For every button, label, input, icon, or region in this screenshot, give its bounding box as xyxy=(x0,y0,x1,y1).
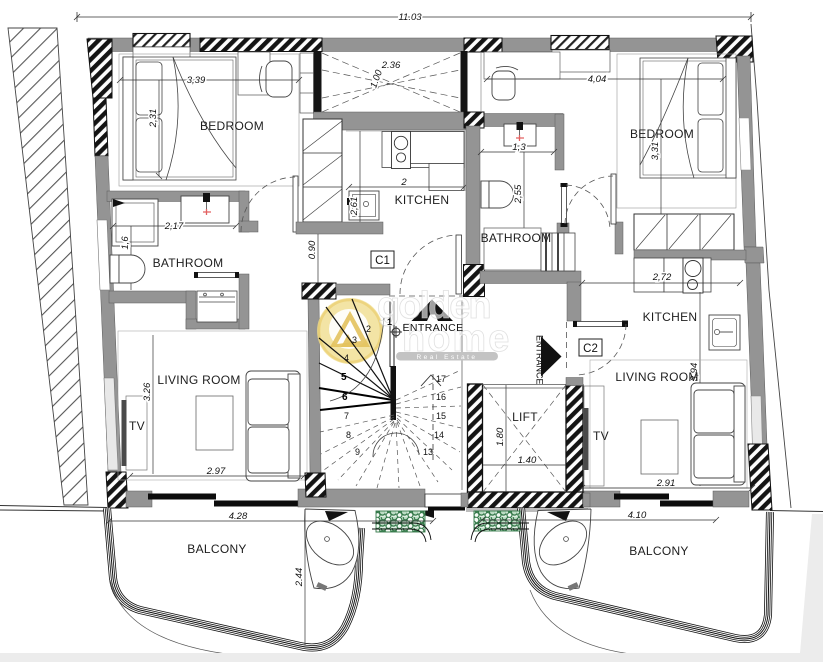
svg-text:1,6: 1,6 xyxy=(120,236,131,250)
svg-text:BALCONY: BALCONY xyxy=(187,542,246,556)
svg-text:2,72: 2,72 xyxy=(652,272,672,283)
svg-text:TV: TV xyxy=(593,429,609,443)
svg-text:4: 4 xyxy=(344,353,349,363)
svg-text:TV: TV xyxy=(129,419,145,433)
svg-text:2: 2 xyxy=(400,177,407,188)
svg-text:1: 1 xyxy=(387,317,392,327)
svg-text:16: 16 xyxy=(436,392,446,402)
svg-text:13: 13 xyxy=(423,447,433,457)
svg-text:4.10: 4.10 xyxy=(628,510,647,521)
svg-text:2.91: 2.91 xyxy=(656,478,676,489)
svg-text:14: 14 xyxy=(434,430,444,440)
svg-text:4.28: 4.28 xyxy=(229,511,248,522)
svg-text:BEDROOM: BEDROOM xyxy=(630,127,694,141)
svg-text:1.80: 1.80 xyxy=(495,427,506,446)
svg-text:11.03: 11.03 xyxy=(398,12,422,23)
svg-text:LIFT: LIFT xyxy=(512,410,538,424)
svg-text:9: 9 xyxy=(355,447,360,457)
svg-text:8: 8 xyxy=(346,430,351,440)
svg-text:2,17: 2,17 xyxy=(164,221,184,232)
svg-text:15: 15 xyxy=(436,411,446,421)
svg-text:LIVING ROOM: LIVING ROOM xyxy=(615,370,698,384)
svg-text:BEDROOM: BEDROOM xyxy=(200,119,264,133)
svg-text:C2: C2 xyxy=(583,343,598,355)
svg-text:17: 17 xyxy=(436,374,446,384)
svg-text:KITCHEN: KITCHEN xyxy=(395,193,450,207)
svg-text:6: 6 xyxy=(342,392,348,403)
svg-text:KITCHEN: KITCHEN xyxy=(643,310,698,324)
svg-text:Real Estate: Real Estate xyxy=(416,354,477,361)
svg-text:2,55: 2,55 xyxy=(513,184,524,204)
svg-text:7: 7 xyxy=(344,411,349,421)
svg-text:0.90: 0.90 xyxy=(307,240,318,259)
svg-text:2.36: 2.36 xyxy=(381,60,401,71)
svg-text:2,61: 2,61 xyxy=(349,197,360,217)
svg-text:3.26: 3.26 xyxy=(142,382,153,401)
svg-text:3,31: 3,31 xyxy=(650,142,661,161)
svg-text:1,3: 1,3 xyxy=(512,142,526,153)
svg-text:2: 2 xyxy=(366,324,371,334)
svg-text:4,04: 4,04 xyxy=(588,74,607,85)
svg-text:LIVING ROOM: LIVING ROOM xyxy=(157,373,240,387)
svg-text:3,39: 3,39 xyxy=(187,75,206,86)
svg-text:BALCONY: BALCONY xyxy=(629,544,688,558)
svg-text:ENTRANCE: ENTRANCE xyxy=(403,322,464,334)
svg-text:5: 5 xyxy=(341,372,347,383)
svg-text:BATHROOM: BATHROOM xyxy=(153,256,224,270)
svg-text:2,31: 2,31 xyxy=(148,109,159,129)
svg-text:2.44: 2.44 xyxy=(294,568,305,588)
svg-text:BATHROOM: BATHROOM xyxy=(481,231,552,245)
svg-text:C1: C1 xyxy=(375,255,390,267)
svg-text:3: 3 xyxy=(352,335,357,345)
svg-text:2.97: 2.97 xyxy=(206,466,226,477)
svg-text:1.40: 1.40 xyxy=(518,455,537,466)
